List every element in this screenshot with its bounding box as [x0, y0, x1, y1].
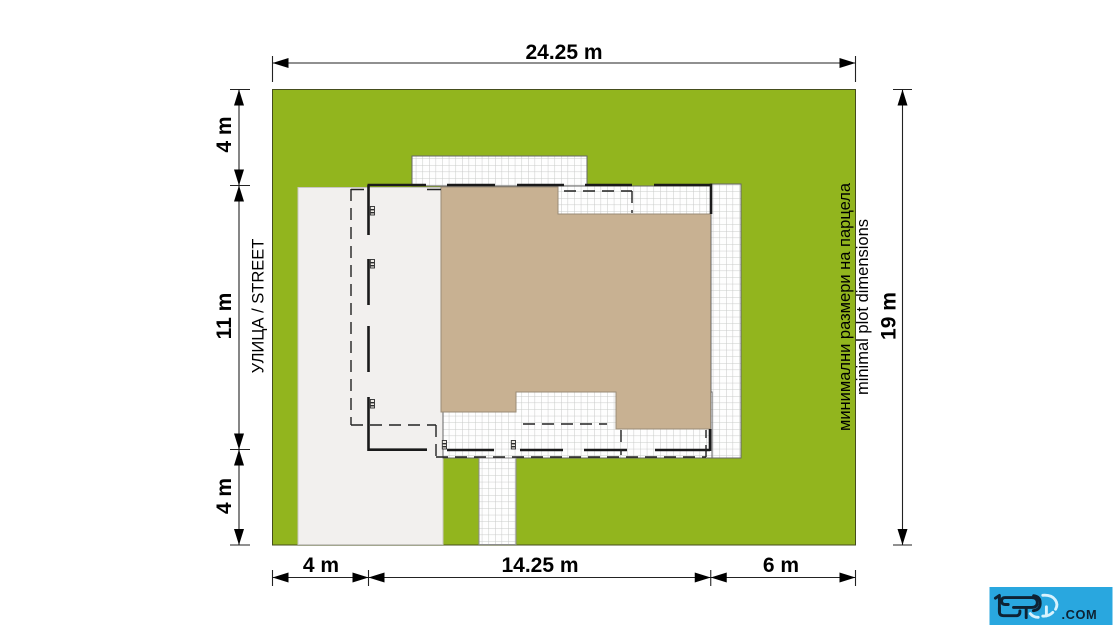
- svg-text:4 m: 4 m: [213, 478, 236, 514]
- svg-text:24.25 m: 24.25 m: [525, 41, 602, 64]
- svg-text:4 m: 4 m: [213, 116, 236, 152]
- svg-text:19 m: 19 m: [878, 292, 901, 340]
- svg-text:4 m: 4 m: [303, 554, 339, 577]
- svg-text:14.25 m: 14.25 m: [501, 554, 578, 577]
- svg-text:минимални размери на парцела: минимални размери на парцела: [836, 182, 854, 431]
- svg-text:.COM: .COM: [1062, 607, 1098, 622]
- svg-text:6 m: 6 m: [763, 554, 799, 577]
- svg-text:minimal plot dimensions: minimal plot dimensions: [854, 219, 872, 395]
- svg-text:УЛИЦА / STREET: УЛИЦА / STREET: [250, 239, 268, 374]
- svg-text:11 m: 11 m: [213, 293, 236, 340]
